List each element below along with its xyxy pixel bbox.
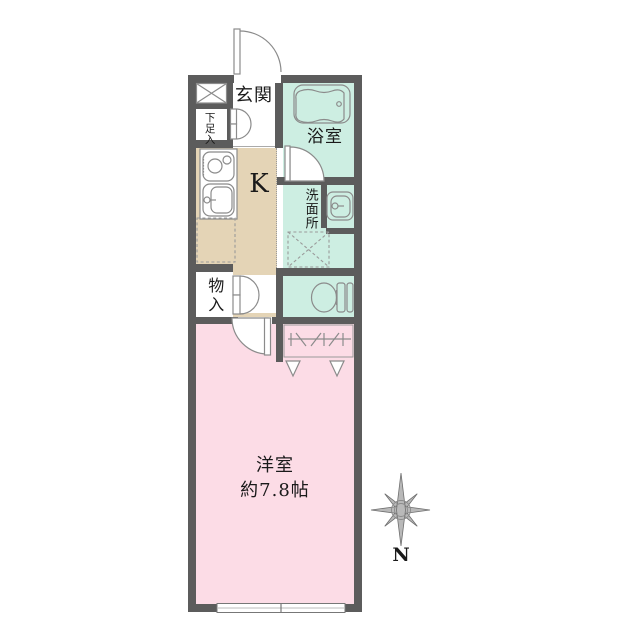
shoe-storage-label: 下足入 bbox=[203, 112, 216, 145]
closet-door-triangles-icon bbox=[286, 361, 344, 376]
refrigerator-space-icon bbox=[197, 218, 235, 262]
fixtures-layer bbox=[0, 0, 640, 640]
main-room-name: 洋室 bbox=[196, 453, 354, 478]
bathroom-label: 浴室 bbox=[297, 127, 353, 147]
storage-doors-icon bbox=[233, 276, 259, 314]
main-room-door-icon bbox=[232, 318, 271, 355]
floorplan-canvas: 玄関 下足入 浴室 K 洗面所 物入 洋室 約7.8帖 N bbox=[0, 0, 640, 640]
storage-label: 物入 bbox=[205, 277, 224, 315]
compass-north-label: N bbox=[386, 544, 416, 567]
entrance-door-icon bbox=[234, 29, 281, 74]
kitchen-counter-icon bbox=[200, 149, 237, 219]
main-room-label: 洋室 約7.8帖 bbox=[196, 453, 354, 503]
shoe-cabinet-doors-icon bbox=[231, 109, 252, 139]
compass-rose-icon bbox=[371, 473, 430, 546]
meter-box-x-icon bbox=[197, 84, 227, 104]
washer-space-icon bbox=[288, 232, 329, 267]
window-icon bbox=[217, 604, 345, 613]
bathtub-icon bbox=[294, 85, 350, 123]
closet-hanger-pipe-icon bbox=[284, 325, 353, 357]
washbasin-icon bbox=[327, 192, 353, 220]
washroom-label: 洗面所 bbox=[302, 188, 318, 230]
toilet-icon bbox=[312, 283, 354, 312]
kitchen-label: K bbox=[240, 169, 278, 200]
entrance-label: 玄関 bbox=[231, 85, 277, 107]
bathroom-door-icon bbox=[285, 146, 324, 181]
main-room-size: 約7.8帖 bbox=[196, 478, 354, 503]
